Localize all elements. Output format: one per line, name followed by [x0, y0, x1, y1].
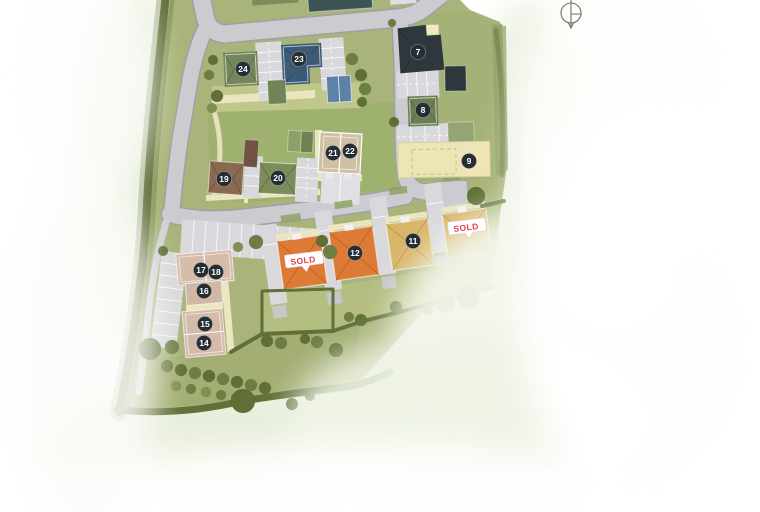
plot-7-court — [427, 25, 439, 35]
plot-badge-18-label: 18 — [211, 267, 221, 277]
plot-badge-21-label: 21 — [328, 148, 338, 158]
plot-badge-19-label: 19 — [219, 174, 229, 184]
plot-badge-7[interactable]: 7 — [410, 44, 425, 59]
tree — [344, 312, 354, 322]
tree — [355, 69, 367, 81]
tree — [204, 70, 214, 80]
tree — [355, 314, 367, 326]
plot-badge-16-label: 16 — [199, 286, 209, 296]
plot-badge-19[interactable]: 19 — [216, 171, 231, 186]
tree — [231, 376, 243, 388]
plot-badge-14[interactable]: 14 — [196, 335, 211, 350]
plot-badge-15-label: 15 — [200, 319, 210, 329]
plot-badge-9[interactable]: 9 — [461, 153, 476, 168]
plot-24-shed — [267, 80, 286, 105]
plot-badge-17-label: 17 — [196, 265, 206, 275]
tree — [203, 370, 215, 382]
tree — [216, 390, 226, 400]
tree — [357, 97, 367, 107]
tree — [165, 340, 179, 354]
tree — [217, 373, 229, 385]
tree — [208, 55, 218, 65]
plot-badge-23[interactable]: 23 — [291, 51, 306, 66]
tree — [346, 53, 358, 65]
plot-badge-20[interactable]: 20 — [270, 170, 285, 185]
tree — [388, 19, 396, 27]
tree — [316, 235, 328, 247]
tree — [245, 379, 257, 391]
tree — [275, 337, 287, 349]
plot-11-porch — [400, 216, 410, 223]
sold-a-porch — [292, 233, 302, 240]
sold-b-porch — [457, 206, 467, 213]
tree — [189, 367, 201, 379]
site-plan-canvas: 7 8 9 11 12 14 15 16 17 18 19 20 21 22 2… — [0, 0, 760, 512]
plot-badge-17[interactable]: 17 — [193, 262, 208, 277]
plot-badge-14-label: 14 — [199, 338, 209, 348]
tree — [259, 382, 271, 394]
tree — [231, 389, 255, 413]
plot-20-shed-a — [287, 130, 301, 152]
tree — [207, 103, 217, 113]
plot-badge-12-label: 12 — [350, 248, 360, 258]
plot-badge-9-label: 9 — [467, 156, 472, 166]
tree — [323, 245, 337, 259]
tree — [211, 90, 223, 102]
plot-badge-8-label: 8 — [421, 105, 426, 115]
tree — [201, 387, 211, 397]
tree — [175, 364, 187, 376]
tree — [261, 335, 273, 347]
plot-badge-24-label: 24 — [238, 64, 248, 74]
tree — [359, 83, 371, 95]
plot-badge-11[interactable]: 11 — [405, 233, 420, 248]
plot-badge-20-label: 20 — [273, 173, 283, 183]
plot-22-porch — [344, 173, 352, 179]
plot-badge-12[interactable]: 12 — [347, 245, 362, 260]
plot-badge-8[interactable]: 8 — [415, 102, 430, 117]
parking-plot7 — [397, 70, 440, 98]
tree — [161, 360, 173, 372]
plot-badge-11-label: 11 — [409, 236, 418, 246]
plot-badge-16[interactable]: 16 — [196, 283, 211, 298]
tree — [233, 242, 243, 252]
plot-badge-24[interactable]: 24 — [235, 61, 250, 76]
plot-12-porch — [344, 224, 354, 231]
tree — [158, 246, 168, 256]
plot-badge-7-label: 7 — [416, 47, 421, 57]
plot-badge-22[interactable]: 22 — [342, 143, 357, 158]
parking-20 — [295, 157, 319, 202]
plot-badge-15[interactable]: 15 — [197, 316, 212, 331]
plot-badge-23-label: 23 — [294, 54, 304, 64]
plot-badge-22-label: 22 — [345, 146, 355, 156]
tree — [329, 343, 343, 357]
plot-20-shed-b — [300, 131, 313, 153]
tree — [389, 117, 399, 127]
tree — [467, 187, 485, 205]
tree — [311, 336, 323, 348]
plot-badge-18[interactable]: 18 — [208, 264, 223, 279]
plot-7-garage — [445, 66, 466, 91]
site-plan-svg: 7 8 9 11 12 14 15 16 17 18 19 20 21 22 2… — [0, 0, 760, 512]
plot-19-shed — [243, 140, 259, 168]
plot-21-porch — [326, 172, 334, 178]
tree — [300, 334, 310, 344]
tree — [171, 381, 181, 391]
tree — [186, 384, 196, 394]
plot-8-shed — [448, 122, 475, 144]
tree — [249, 235, 263, 249]
plot-badge-21[interactable]: 21 — [325, 145, 340, 160]
